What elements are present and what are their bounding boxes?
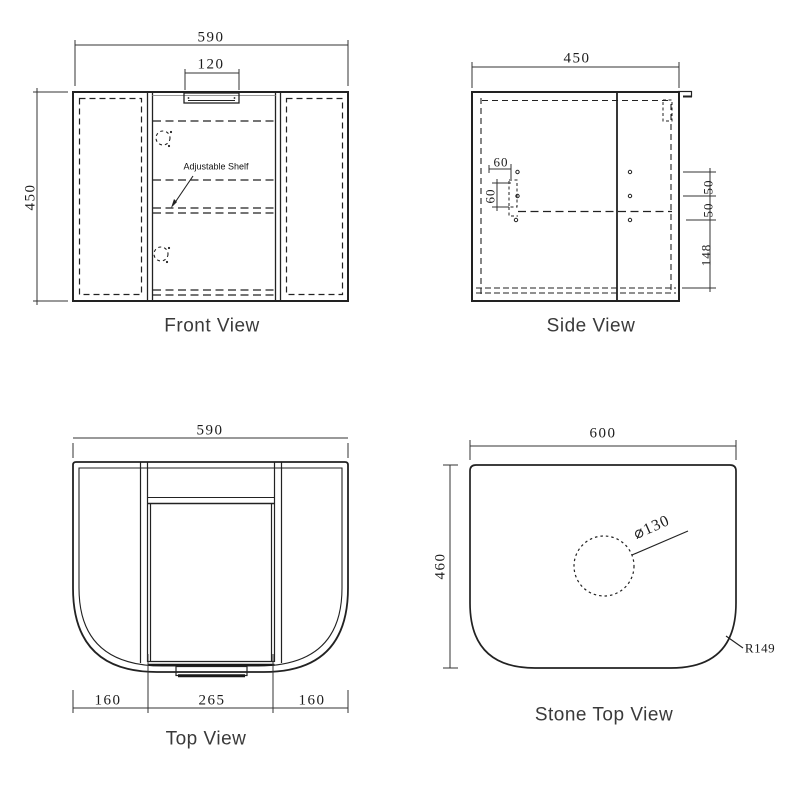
front-dimension-lines (33, 40, 348, 305)
front-height-dim-label: 450 (24, 184, 39, 211)
side-view-linework (472, 91, 692, 301)
left-panel-dashed (80, 99, 142, 295)
side-hinge-inset-dim-label: 60 (494, 156, 509, 169)
top-view-title: Top View (166, 730, 247, 749)
top-width-dim-label: 590 (197, 424, 224, 439)
hinge-plate-dashed (509, 180, 517, 207)
top-left-dim-label: 160 (95, 694, 122, 709)
side-hole-gap1-dim-label: 50 (702, 180, 715, 195)
front-handle-dim-label: 120 (198, 58, 225, 73)
shelf-leader-arrow (171, 176, 193, 208)
front-width-dim-label: 590 (198, 31, 225, 46)
front-view-title: Front View (164, 317, 259, 336)
front-view-linework (73, 92, 348, 301)
top-door-dim-label: 265 (199, 694, 226, 709)
stone-top-view-title: Stone Top View (535, 706, 673, 725)
top-right-dim-label: 160 (299, 694, 326, 709)
adjustable-shelf-label: Adjustable Shelf (183, 163, 248, 172)
side-hole-gap2-dim-label: 50 (702, 203, 715, 218)
side-view-title: Side View (547, 317, 636, 336)
technical-drawing-sheet: 590 450 120 Adjustable Shelf Front View … (0, 0, 800, 800)
stone-depth-dim-label: 460 (434, 553, 449, 580)
shelf-pin-holes (514, 170, 631, 221)
front-handle (184, 93, 239, 103)
drawing-svg (0, 0, 800, 800)
hinge-cup-bottom-icon (154, 247, 170, 263)
stone-dimension-lines (443, 440, 736, 668)
stone-top-linework (470, 465, 743, 668)
hinge-cup-top-icon (156, 131, 172, 147)
tap-hole-dashed-circle (574, 536, 634, 596)
front-shelf-lines (153, 121, 275, 295)
right-panel-dashed (287, 99, 343, 295)
side-hinge-spacing-dim-label: 60 (484, 189, 497, 204)
radius-leader (726, 636, 743, 648)
side-depth-dim-label: 450 (564, 52, 591, 67)
wall-hook-icon (678, 91, 692, 97)
top-view-linework (73, 462, 348, 676)
side-bottom-offset-dim-label: 148 (700, 244, 713, 267)
stone-width-dim-label: 600 (590, 427, 617, 442)
corner-radius-dim-label: R149 (745, 642, 775, 655)
